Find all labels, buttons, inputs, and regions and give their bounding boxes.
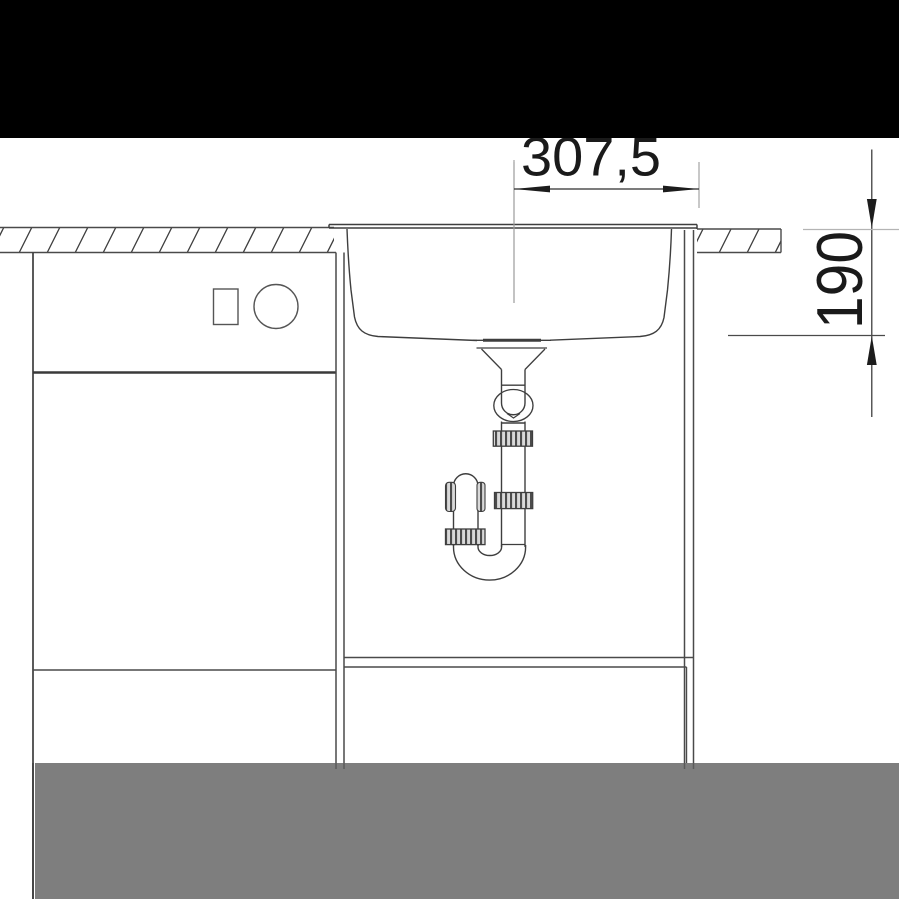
svg-text:190: 190 [803,231,876,329]
